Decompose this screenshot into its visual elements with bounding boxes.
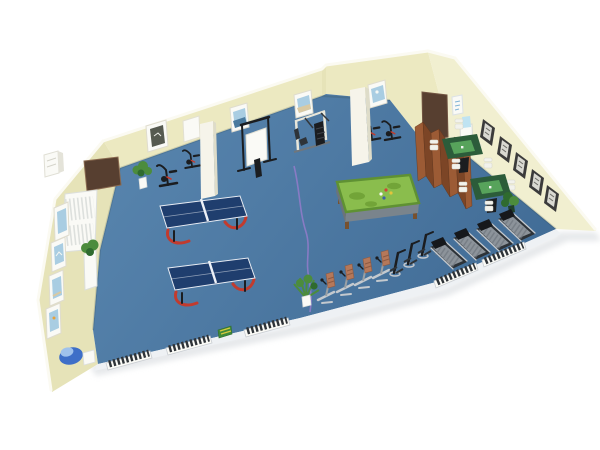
mahjong-chair: [459, 182, 467, 192]
mahjong-chair: [430, 140, 438, 150]
poster: [294, 90, 313, 118]
column: [350, 87, 372, 166]
poster: [368, 80, 387, 108]
picture: [49, 270, 64, 306]
room-render-stage: 3D cutaway render of a recreation room w…: [0, 0, 600, 450]
picture: [51, 237, 66, 272]
wall-sign: [452, 95, 463, 115]
room-3d-render: 3D cutaway render of a recreation room w…: [0, 0, 600, 450]
ac-unit: [44, 151, 64, 177]
picture: [54, 202, 69, 241]
mahjong-chair: [452, 159, 460, 169]
left-door: [84, 157, 121, 191]
picture: [46, 303, 61, 339]
mahjong-chair: [485, 201, 493, 211]
column: [200, 121, 218, 199]
mahjong-chair: [455, 119, 463, 129]
picture-bird: [146, 120, 168, 152]
wall-seam: [322, 66, 326, 96]
poster: [230, 103, 249, 132]
mahjong-chair: [484, 158, 492, 168]
blank-sign: [183, 116, 200, 142]
